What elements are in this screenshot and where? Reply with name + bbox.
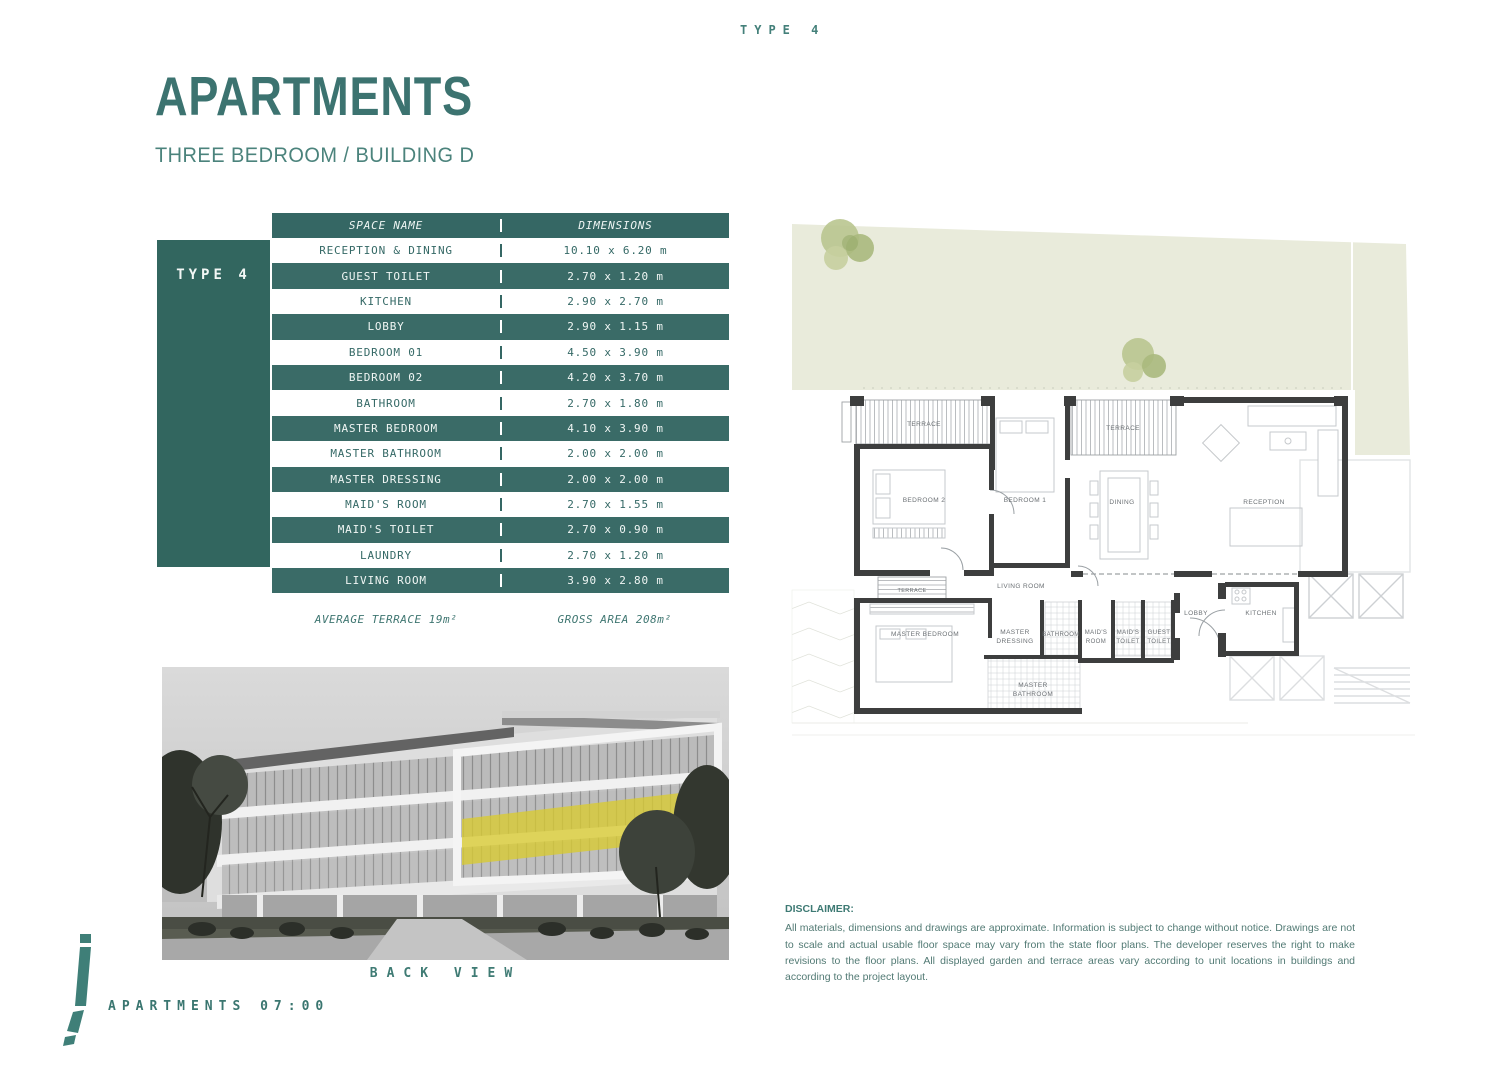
cell-dimensions: 2.70 x 0.90 m xyxy=(500,523,729,536)
table-row: KITCHEN2.90 x 2.70 m xyxy=(272,289,729,314)
svg-text:TERRACE: TERRACE xyxy=(897,588,926,594)
svg-text:TOILET: TOILET xyxy=(1116,639,1139,645)
svg-text:TOILET: TOILET xyxy=(1147,639,1170,645)
cell-space-name: MASTER DRESSING xyxy=(272,473,500,486)
cell-space-name: LOBBY xyxy=(272,320,500,333)
svg-text:BEDROOM 1: BEDROOM 1 xyxy=(1004,497,1047,504)
table-row: MASTER BEDROOM4.10 x 3.90 m xyxy=(272,416,729,441)
table-row: MASTER DRESSING2.00 x 2.00 m xyxy=(272,467,729,492)
photo-caption: BACK VIEW xyxy=(162,966,729,981)
gross-area-note: GROSS AREA 208m² xyxy=(500,613,729,626)
table-row: BEDROOM 014.50 x 3.90 m xyxy=(272,340,729,365)
svg-text:LOBBY: LOBBY xyxy=(1184,610,1208,617)
cell-dimensions: 2.90 x 1.15 m xyxy=(500,320,729,333)
svg-text:BATHROOM: BATHROOM xyxy=(1013,691,1053,698)
cell-space-name: MASTER BATHROOM xyxy=(272,447,500,460)
table-row: MAID'S TOILET2.70 x 0.90 m xyxy=(272,517,729,542)
svg-text:ROOM: ROOM xyxy=(1086,639,1106,645)
cell-space-name: BEDROOM 01 xyxy=(272,346,500,359)
table-header-row: SPACE NAME DIMENSIONS xyxy=(272,213,729,238)
svg-text:MASTER: MASTER xyxy=(1000,629,1030,636)
landscaping-hatch xyxy=(792,590,854,723)
disclaimer: DISCLAIMER: All materials, dimensions an… xyxy=(785,901,1355,985)
dimensions-table: SPACE NAME DIMENSIONS RECEPTION & DINING… xyxy=(272,213,729,593)
cell-dimensions: 10.10 x 6.20 m xyxy=(500,244,729,257)
brand-name: APARTMENTS 07:00 xyxy=(108,999,329,1014)
column-header-dimensions: DIMENSIONS xyxy=(500,219,729,232)
svg-text:DINING: DINING xyxy=(1109,499,1134,506)
cell-space-name: LAUNDRY xyxy=(272,549,500,562)
svg-text:TERRACE: TERRACE xyxy=(907,421,941,428)
cell-dimensions: 3.90 x 2.80 m xyxy=(500,574,729,587)
cell-space-name: KITCHEN xyxy=(272,295,500,308)
disclaimer-body: All materials, dimensions and drawings a… xyxy=(785,920,1355,985)
svg-text:KITCHEN: KITCHEN xyxy=(1245,610,1276,617)
svg-text:LIVING ROOM: LIVING ROOM xyxy=(997,583,1045,590)
type-sidebar: TYPE 4 xyxy=(157,240,270,567)
svg-text:RECEPTION: RECEPTION xyxy=(1243,499,1285,506)
type-sidebar-label: TYPE 4 xyxy=(176,267,251,283)
cell-dimensions: 2.70 x 1.20 m xyxy=(500,549,729,562)
cell-space-name: MAID'S ROOM xyxy=(272,498,500,511)
cell-dimensions: 2.70 x 1.80 m xyxy=(500,397,729,410)
cell-space-name: MASTER BEDROOM xyxy=(272,422,500,435)
table-notes: AVERAGE TERRACE 19m² GROSS AREA 208m² xyxy=(272,613,729,626)
cell-space-name: BEDROOM 02 xyxy=(272,371,500,384)
column-header-space-name: SPACE NAME xyxy=(272,219,500,232)
table-row: RECEPTION & DINING10.10 x 6.20 m xyxy=(272,238,729,263)
cell-dimensions: 2.00 x 2.00 m xyxy=(500,447,729,460)
brand-logo xyxy=(58,928,104,1050)
cell-dimensions: 2.00 x 2.00 m xyxy=(500,473,729,486)
table-row: MAID'S ROOM2.70 x 1.55 m xyxy=(272,492,729,517)
table-row: GUEST TOILET2.70 x 1.20 m xyxy=(272,263,729,288)
svg-text:BATHROOM: BATHROOM xyxy=(1042,632,1079,638)
table-row: LIVING ROOM3.90 x 2.80 m xyxy=(272,568,729,593)
cell-space-name: BATHROOM xyxy=(272,397,500,410)
floor-plan: TERRACE BEDROOM 2 BEDROOM 1 TERRACE DINI… xyxy=(778,178,1415,768)
type-tag: TYPE 4 xyxy=(740,23,825,37)
table-body: RECEPTION & DINING10.10 x 6.20 m GUEST T… xyxy=(272,238,729,593)
table-row: MASTER BATHROOM2.00 x 2.00 m xyxy=(272,441,729,466)
svg-text:DRESSING: DRESSING xyxy=(996,638,1033,645)
cell-dimensions: 4.20 x 3.70 m xyxy=(500,371,729,384)
cell-space-name: LIVING ROOM xyxy=(272,574,500,587)
svg-text:BEDROOM 2: BEDROOM 2 xyxy=(903,497,946,504)
cell-dimensions: 4.50 x 3.90 m xyxy=(500,346,729,359)
page-title: APARTMENTS xyxy=(155,64,473,128)
cell-dimensions: 4.10 x 3.90 m xyxy=(500,422,729,435)
cell-space-name: GUEST TOILET xyxy=(272,270,500,283)
cell-space-name: MAID'S TOILET xyxy=(272,523,500,536)
svg-text:MAID'S: MAID'S xyxy=(1117,630,1140,636)
building-photo xyxy=(162,667,729,960)
doors xyxy=(941,490,1225,648)
svg-text:TERRACE: TERRACE xyxy=(1106,425,1140,432)
svg-text:GUEST: GUEST xyxy=(1148,630,1171,636)
table-row: LOBBY2.90 x 1.15 m xyxy=(272,314,729,339)
cell-dimensions: 2.70 x 1.20 m xyxy=(500,270,729,283)
page-subtitle: THREE BEDROOM / BUILDING D xyxy=(155,144,474,168)
table-row: LAUNDRY2.70 x 1.20 m xyxy=(272,543,729,568)
svg-text:MASTER: MASTER xyxy=(1018,682,1048,689)
svg-text:MAID'S: MAID'S xyxy=(1085,630,1108,636)
average-terrace-note: AVERAGE TERRACE 19m² xyxy=(272,613,500,626)
svg-text:MASTER BEDROOM: MASTER BEDROOM xyxy=(891,631,959,638)
disclaimer-heading: DISCLAIMER: xyxy=(785,901,1355,917)
cell-dimensions: 2.90 x 2.70 m xyxy=(500,295,729,308)
cell-dimensions: 2.70 x 1.55 m xyxy=(500,498,729,511)
table-row: BEDROOM 024.20 x 3.70 m xyxy=(272,365,729,390)
cell-space-name: RECEPTION & DINING xyxy=(272,244,500,257)
table-row: BATHROOM2.70 x 1.80 m xyxy=(272,390,729,415)
